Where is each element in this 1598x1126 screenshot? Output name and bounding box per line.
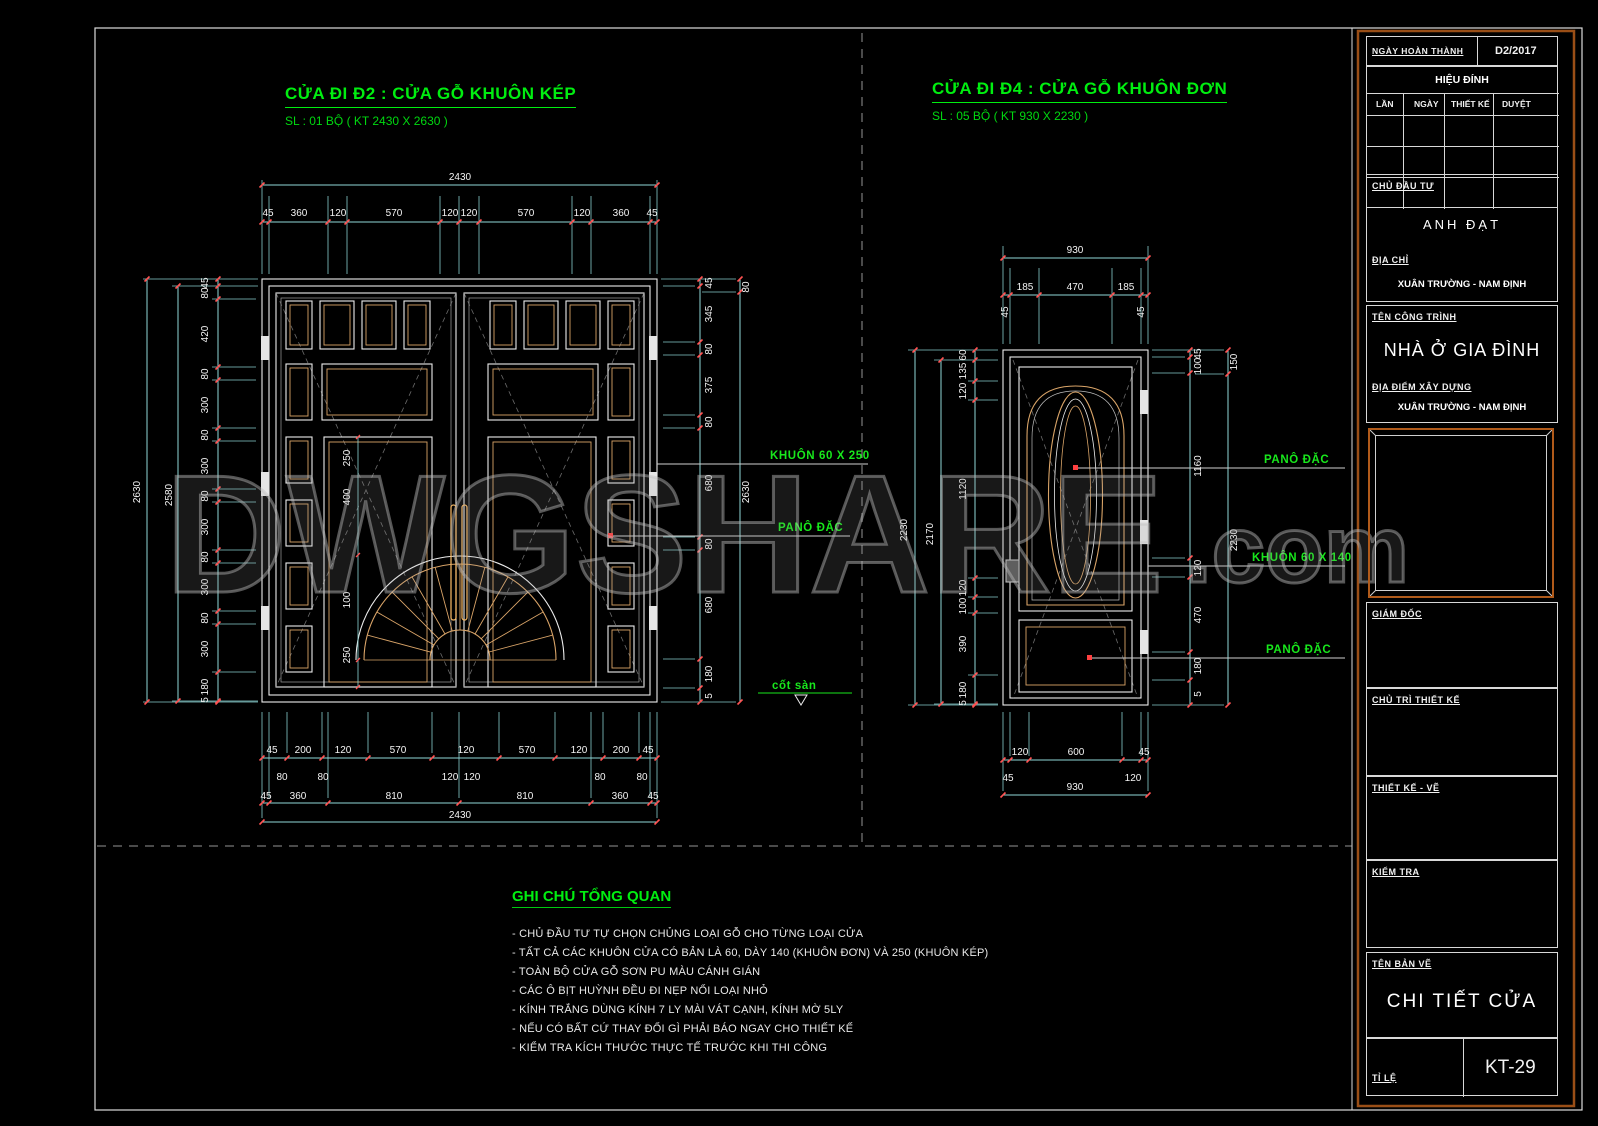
- dim-label: 120: [442, 772, 459, 783]
- client-value: ANH ĐẠT: [1367, 217, 1557, 232]
- note-item: - KIỂM TRA KÍCH THƯỚC THỰC TẾ TRƯỚC KHI …: [512, 1042, 988, 1054]
- right-door-dim-labels: 930 185 470 185 45 45 2230 2170 60 135 1…: [899, 245, 1240, 793]
- right-door-dimensions: [908, 246, 1228, 795]
- address-label: ĐỊA CHỈ: [1372, 255, 1409, 265]
- dim-label: 250: [342, 449, 353, 466]
- dim-label: 470: [1067, 282, 1084, 293]
- dim-label: 300: [200, 396, 211, 413]
- scale-row: TỈ LỆ KT-29: [1366, 1038, 1558, 1096]
- dim-label: 5: [704, 693, 715, 699]
- revision-title: HIỆU ĐÍNH: [1367, 74, 1557, 86]
- dim-label: 300: [200, 457, 211, 474]
- dim-label: 80: [200, 368, 211, 380]
- grid-line: [1367, 93, 1559, 94]
- left-view-subtitle: SL : 01 BỘ ( KT 2430 X 2630 ): [285, 114, 576, 128]
- dim-label: 470: [1193, 606, 1204, 623]
- dim-label: 1120: [958, 478, 969, 500]
- dim-label: 570: [519, 745, 536, 756]
- dim-label: 150: [1229, 353, 1240, 370]
- dim-label: 180: [200, 678, 211, 695]
- dim-label: 185: [1118, 282, 1135, 293]
- project-label: TÊN CÔNG TRÌNH: [1372, 312, 1457, 322]
- dim-label: 180: [704, 665, 715, 682]
- date-value: D2/2017: [1495, 45, 1537, 57]
- lead-designer-section: CHỦ TRÌ THIẾT KẾ: [1366, 688, 1558, 776]
- dim-label: 45: [260, 791, 272, 802]
- frame-box: [1368, 428, 1554, 598]
- dim-label: 360: [612, 791, 629, 802]
- dim-label: 45: [1002, 773, 1014, 784]
- dim-label: 400: [342, 488, 353, 505]
- dim-label: 80: [741, 281, 752, 293]
- layout-dividers: [97, 33, 1352, 846]
- extension-lines: [908, 246, 1224, 791]
- dim-label: 45: [646, 208, 658, 219]
- dim-label: 345: [704, 305, 715, 322]
- right-view-subtitle: SL : 05 BỘ ( KT 930 X 2230 ): [932, 109, 1227, 123]
- project-section: TÊN CÔNG TRÌNH NHÀ Ở GIA ĐÌNH ĐỊA ĐIỂM X…: [1366, 305, 1558, 423]
- dim-label: 45: [704, 277, 715, 289]
- dim-label: 80: [200, 551, 211, 563]
- callout-pano-r1: PANÔ ĐẶC: [1264, 453, 1329, 466]
- dim-label: 810: [517, 791, 534, 802]
- dim-label: 120: [1125, 773, 1142, 784]
- dim-label: 2630: [132, 480, 143, 503]
- dim-label: 5: [958, 700, 969, 706]
- dim-label: 100: [342, 591, 353, 608]
- dim-label: 570: [386, 208, 403, 219]
- left-view-title: CỬA ĐI Đ2 : CỬA GỖ KHUÔN KÉP: [285, 84, 576, 108]
- drawing-sheet: 2430 45 360 120 570 120 120 570 120 360 …: [0, 0, 1598, 1126]
- right-view-title-block: CỬA ĐI Đ4 : CỬA GỖ KHUÔN ĐƠN SL : 05 BỘ …: [932, 79, 1227, 123]
- callout-khuon-don: KHUÔN 60 X 140: [1252, 551, 1352, 564]
- dim-label: 45: [200, 277, 211, 289]
- dim-label: 120: [442, 208, 459, 219]
- dim-label: 360: [613, 208, 630, 219]
- dim-label: 2430: [449, 172, 472, 183]
- dim-label: 360: [290, 791, 307, 802]
- dim-label: 120: [574, 208, 591, 219]
- dim-label: 390: [958, 635, 969, 652]
- level-triangle-icon: [795, 695, 807, 705]
- note-item: - TẤT CẢ CÁC KHUÔN CỬA CÓ BẢN LÀ 60, DÀY…: [512, 947, 988, 959]
- lead-designer-label: CHỦ TRÌ THIẾT KẾ: [1372, 695, 1460, 705]
- dim-label: 80: [276, 772, 288, 783]
- dim-label: 80: [636, 772, 648, 783]
- dim-label: 680: [704, 596, 715, 613]
- callout-khuon-kep: KHUÔN 60 X 250: [770, 449, 870, 462]
- date-row: NGÀY HOÀN THÀNH D2/2017: [1366, 36, 1558, 66]
- dim-label: 100: [958, 597, 969, 614]
- leader-dot: [608, 533, 613, 538]
- dim-label: 1160: [1193, 455, 1204, 477]
- dim-label: 180: [1193, 657, 1204, 674]
- note-item: - TOÀN BỘ CỬA GỖ SƠN PU MÀU CÁNH GIÁN: [512, 966, 988, 978]
- dim-label: 185: [1017, 282, 1034, 293]
- dim-label: 120: [330, 208, 347, 219]
- dim-label: 120: [461, 208, 478, 219]
- dim-label: 2430: [449, 810, 472, 821]
- dim-label: 300: [200, 518, 211, 535]
- notes-section: GHI CHÚ TỔNG QUAN - CHỦ ĐẦU TƯ TỰ CHỌN C…: [512, 888, 988, 1054]
- dim-label: 120: [571, 745, 588, 756]
- dim-label: 375: [704, 376, 715, 393]
- note-item: - CÁC Ô BỊT HUỲNH ĐỀU ĐI NẸP NỔI LOẠI NH…: [512, 985, 988, 997]
- dim-label: 45: [1136, 306, 1147, 318]
- drawing-name-section: TÊN BẢN VẼ CHI TIẾT CỬA: [1366, 952, 1558, 1038]
- client-label: CHỦ ĐẦU TƯ: [1372, 181, 1434, 191]
- project-value: NHÀ Ở GIA ĐÌNH: [1367, 340, 1557, 361]
- revision-col: NGÀY: [1414, 99, 1439, 109]
- dim-label: 5: [200, 697, 211, 703]
- revision-col: LẦN: [1376, 99, 1393, 109]
- callout-pano-left: PANÔ ĐẶC: [778, 521, 843, 534]
- dim-label: 360: [291, 208, 308, 219]
- dim-label: 80: [200, 429, 211, 441]
- dim-label: 600: [1068, 747, 1085, 758]
- dim-label: 80: [317, 772, 329, 783]
- left-door-drawing: [261, 279, 657, 702]
- left-view-title-block: CỬA ĐI Đ2 : CỬA GỖ KHUÔN KÉP SL : 01 BỘ …: [285, 84, 576, 128]
- director-section: GIÁM ĐỐC: [1366, 602, 1558, 688]
- dim-label: 45: [1138, 747, 1150, 758]
- dim-label: 45: [642, 745, 654, 756]
- dim-label: 930: [1067, 782, 1084, 793]
- dim-label: 45: [1000, 306, 1011, 318]
- callout-pano-r2: PANÔ ĐẶC: [1266, 643, 1331, 656]
- dim-label: 570: [390, 745, 407, 756]
- revision-col: THIẾT KẾ: [1451, 99, 1490, 109]
- dim-label: 120: [464, 772, 481, 783]
- dim-label: 45: [266, 745, 278, 756]
- dim-label: 100: [1193, 357, 1204, 374]
- dim-label: 120: [335, 745, 352, 756]
- dim-label: 680: [704, 474, 715, 491]
- grid-line: [1367, 115, 1559, 116]
- dim-label: 135: [958, 362, 969, 379]
- dim-label: 120: [1012, 747, 1029, 758]
- dim-label: 300: [200, 640, 211, 657]
- dim-label: 2230: [1229, 528, 1240, 551]
- dim-label: 120: [958, 579, 969, 596]
- left-door-dim-labels: 2430 45 360 120 570 120 120 570 120 360 …: [132, 172, 752, 821]
- notes-heading: GHI CHÚ TỔNG QUAN: [512, 888, 671, 908]
- dim-label: 5: [1193, 691, 1204, 697]
- dim-label: 80: [704, 416, 715, 428]
- scale-label: TỈ LỆ: [1372, 1073, 1397, 1083]
- dim-label: 2630: [741, 480, 752, 503]
- dim-label: 930: [1067, 245, 1084, 256]
- cell-divider: [1477, 37, 1478, 67]
- location-label: ĐỊA ĐIỂM XÂY DỰNG: [1372, 382, 1471, 392]
- dim-label: 80: [704, 343, 715, 355]
- fan-sunburst: [356, 556, 564, 660]
- location-value: XUÂN TRƯỜNG - NAM ĐỊNH: [1367, 402, 1557, 413]
- dim-label: 2580: [164, 483, 175, 506]
- cell-divider: [1463, 1039, 1464, 1097]
- director-label: GIÁM ĐỐC: [1372, 609, 1422, 619]
- dim-label: 80: [704, 538, 715, 550]
- dim-label: 120: [458, 745, 475, 756]
- right-door-drawing: [1003, 350, 1148, 705]
- dim-label: 45: [647, 791, 659, 802]
- frame-box-corners: [1370, 430, 1552, 596]
- client-section: CHỦ ĐẦU TƯ ANH ĐẠT ĐỊA CHỈ XUÂN TRƯỜNG -…: [1366, 174, 1558, 302]
- dim-label: 120: [958, 382, 969, 399]
- leader-dot: [1073, 465, 1078, 470]
- dim-label: 180: [958, 681, 969, 698]
- door-handles: [451, 505, 467, 620]
- address-value: XUÂN TRƯỜNG - NAM ĐỊNH: [1367, 279, 1557, 290]
- dim-label: 80: [200, 287, 211, 299]
- drawing-name-label: TÊN BẢN VẼ: [1372, 959, 1432, 969]
- dim-label: 80: [594, 772, 606, 783]
- dim-label: 2230: [899, 518, 910, 541]
- grid-line: [1367, 146, 1559, 147]
- dim-label: 45: [262, 208, 274, 219]
- drawing-name: CHI TIẾT CỬA: [1367, 991, 1557, 1013]
- dim-label: 2170: [925, 522, 936, 545]
- door-handle: [1006, 560, 1019, 582]
- date-label: NGÀY HOÀN THÀNH: [1372, 46, 1463, 56]
- note-item: - NẾU CÓ BẤT CỨ THAY ĐỔI GÌ PHẢI BÁO NGA…: [512, 1023, 988, 1035]
- note-item: - CHỦ ĐẦU TƯ TỰ CHỌN CHỦNG LOẠI GỖ CHO T…: [512, 928, 988, 940]
- dim-label: 420: [200, 325, 211, 342]
- checker-section: KIỂM TRA: [1366, 860, 1558, 948]
- designer-section: THIẾT KẾ - VẼ: [1366, 776, 1558, 860]
- dim-label: 120: [1193, 559, 1204, 576]
- note-item: - KÍNH TRẮNG DÙNG KÍNH 7 LY MÀI VÁT CẠNH…: [512, 1004, 988, 1016]
- leader-dot: [1087, 655, 1092, 660]
- dim-label: 80: [200, 490, 211, 502]
- designer-label: THIẾT KẾ - VẼ: [1372, 783, 1440, 793]
- dim-label: 810: [386, 791, 403, 802]
- dim-label: 300: [200, 578, 211, 595]
- dim-label: 250: [342, 646, 353, 663]
- callouts: KHUÔN 60 X 250 PANÔ ĐẶC cốt sàn PANÔ ĐẶC…: [608, 449, 1352, 705]
- extension-lines: [143, 180, 736, 818]
- callout-cot-san: cốt sàn: [772, 680, 816, 692]
- title-block: NGÀY HOÀN THÀNH D2/2017 HIỆU ĐÍNH LẦN NG…: [1366, 36, 1558, 1096]
- dim-label: 60: [958, 349, 969, 361]
- dim-label: 200: [613, 745, 630, 756]
- dim-label: 200: [295, 745, 312, 756]
- dim-label: 80: [200, 612, 211, 624]
- revision-col: DUYỆT: [1502, 99, 1531, 109]
- sheet-number: KT-29: [1485, 1057, 1536, 1079]
- checker-label: KIỂM TRA: [1372, 867, 1420, 877]
- right-view-title: CỬA ĐI Đ4 : CỬA GỖ KHUÔN ĐƠN: [932, 79, 1227, 103]
- dim-label: 570: [518, 208, 535, 219]
